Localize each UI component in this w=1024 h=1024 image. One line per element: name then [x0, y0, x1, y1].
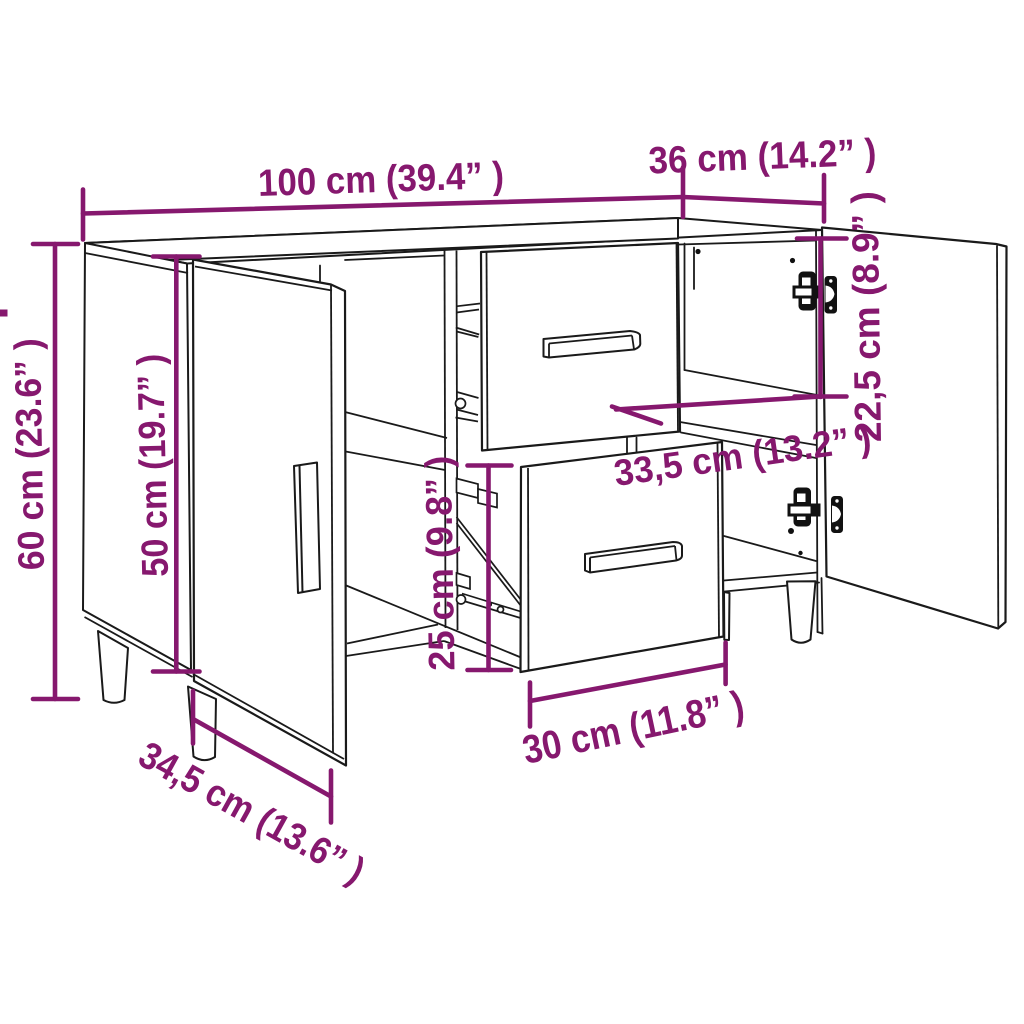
svg-text:100 cm (39.4” ): 100 cm (39.4” ): [257, 155, 504, 205]
svg-text:50 cm (19.7” ): 50 cm (19.7” ): [129, 353, 176, 577]
svg-text:60 cm (23.6” ): 60 cm (23.6” ): [7, 338, 52, 571]
svg-text:36 cm (14.2” ): 36 cm (14.2” ): [648, 132, 877, 183]
svg-text:25 cm (9.8” ): 25 cm (9.8” ): [418, 455, 463, 671]
svg-text:22,5 cm (8.9” ): 22,5 cm (8.9” ): [843, 191, 889, 443]
